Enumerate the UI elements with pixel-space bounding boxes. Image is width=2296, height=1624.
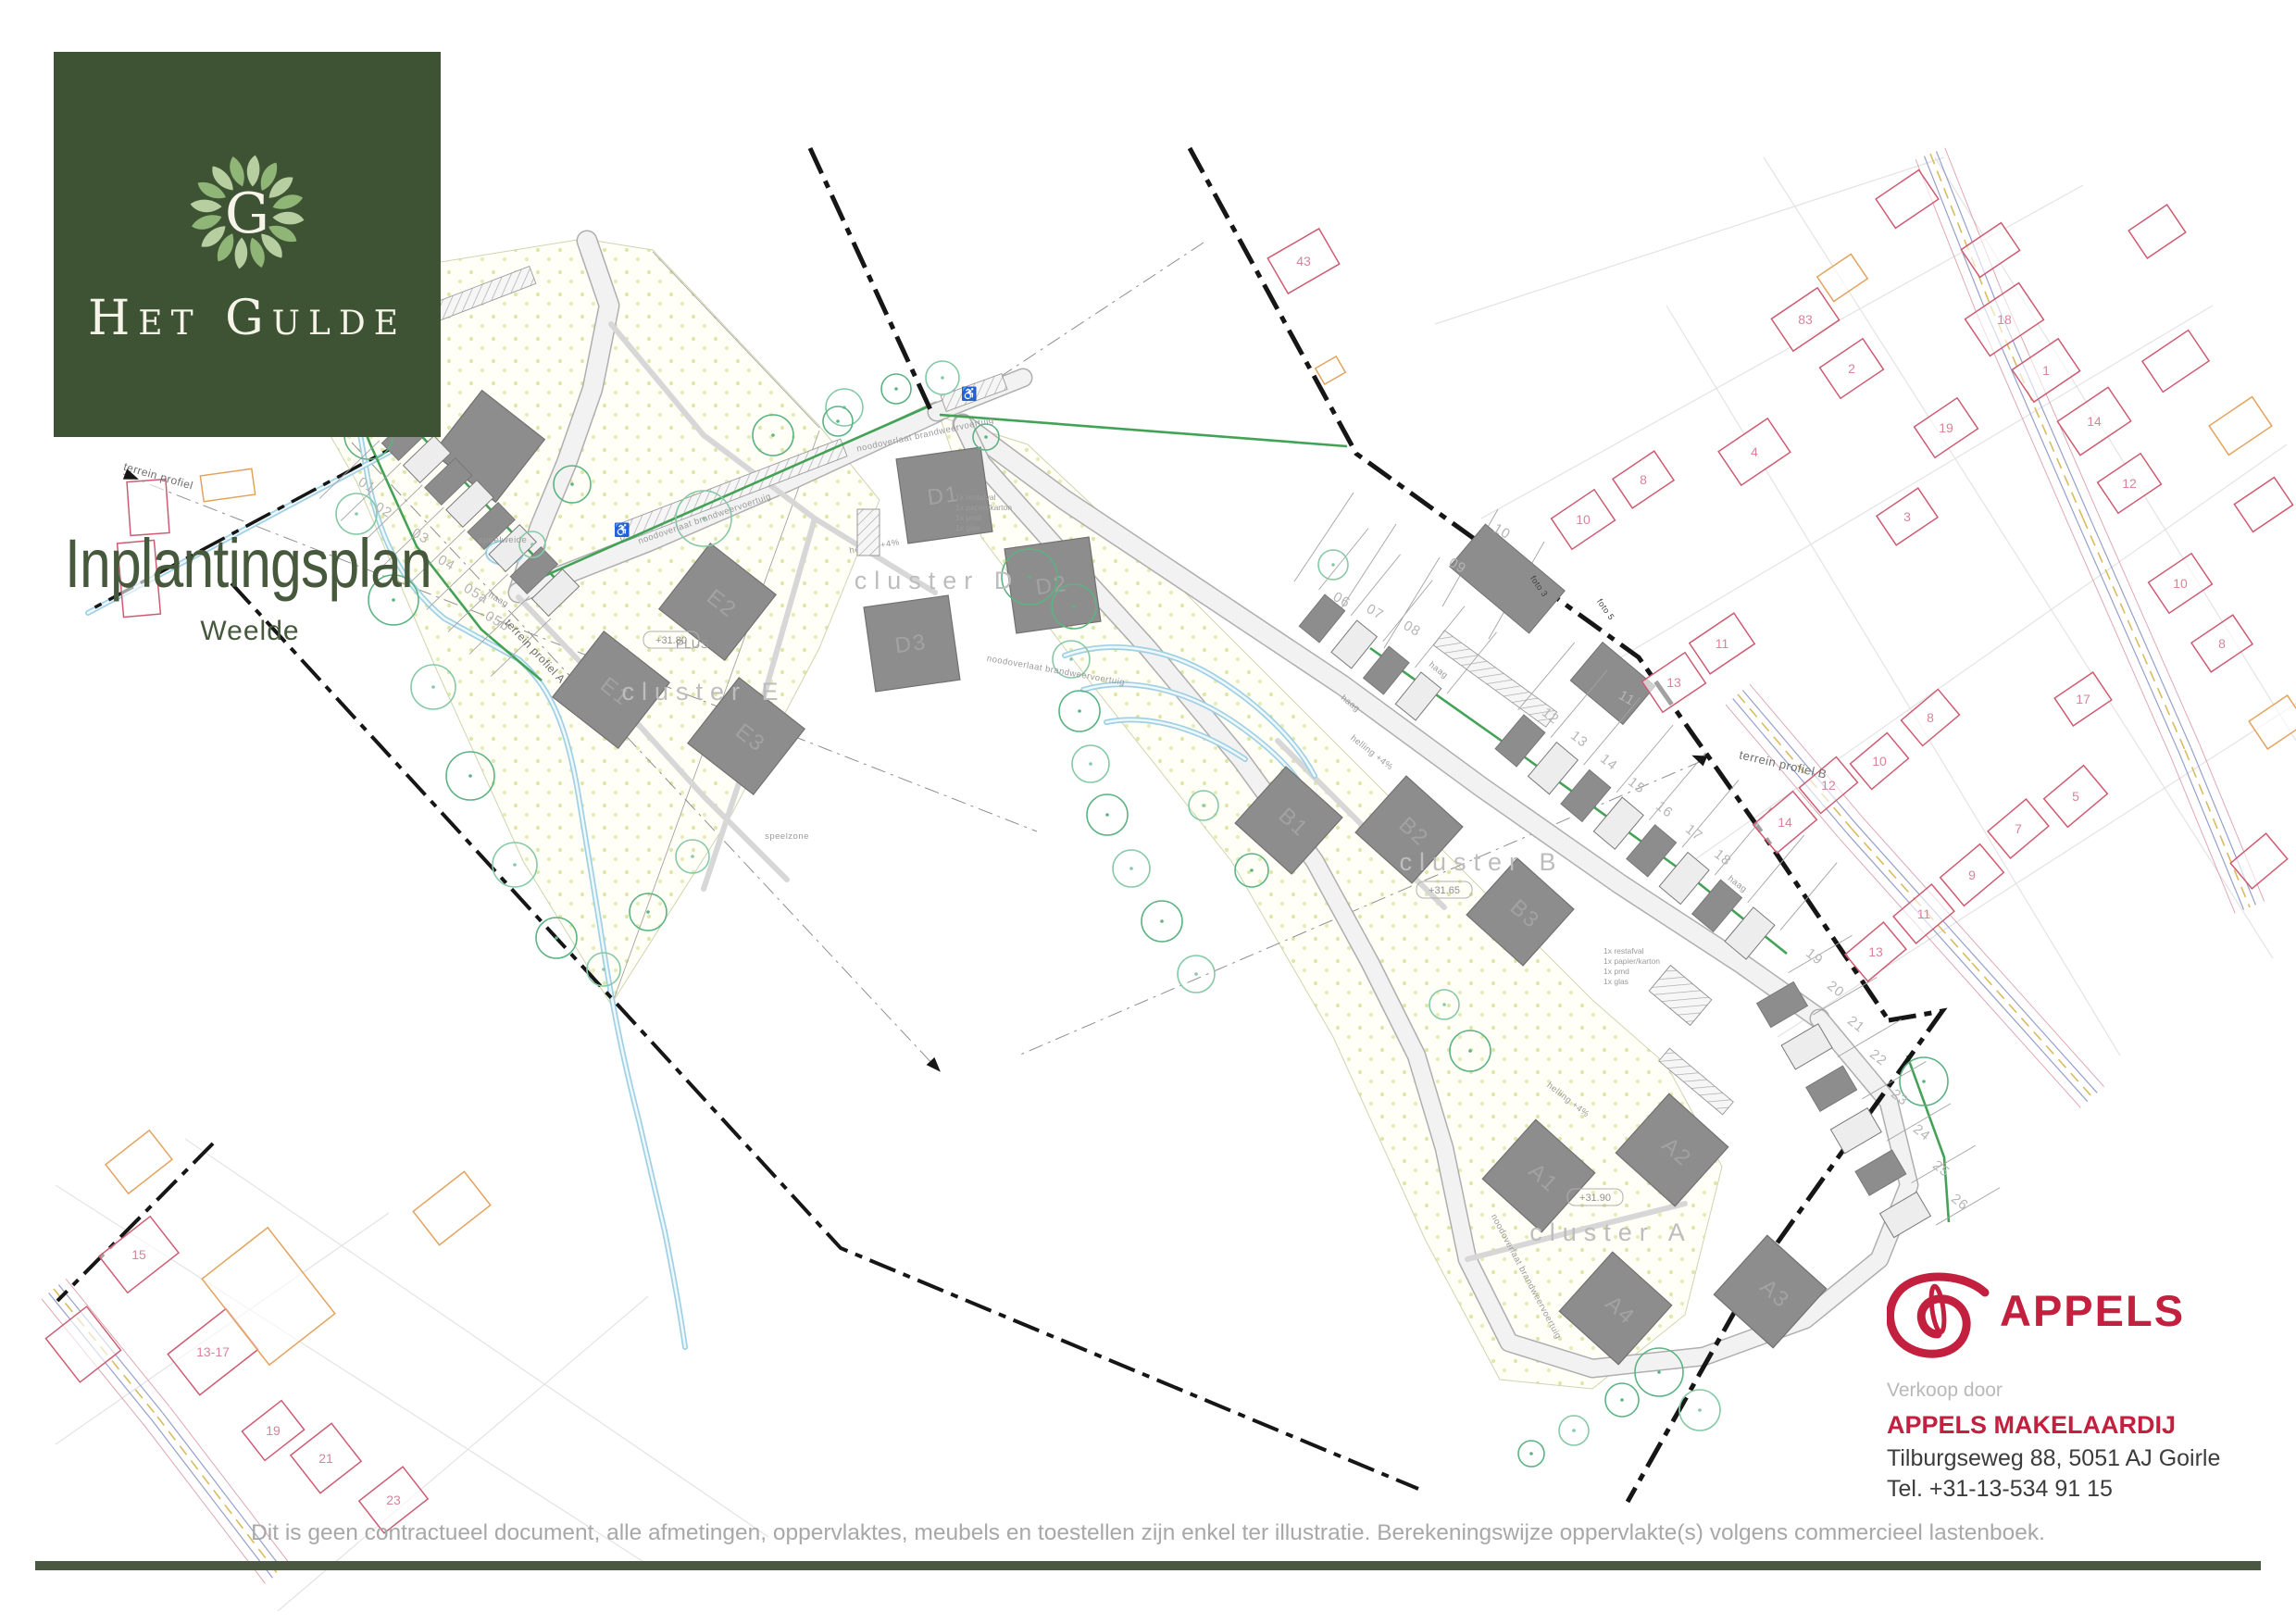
disclaimer: Dit is geen contractueel document, alle … xyxy=(0,1520,2296,1546)
monogram: G xyxy=(225,181,269,246)
map-label: 1x glas xyxy=(1603,977,1628,986)
lot-line xyxy=(1518,643,1575,710)
street-edge xyxy=(144,1426,265,1583)
cadastral-line xyxy=(1666,444,2287,880)
tree-center xyxy=(1202,804,1205,807)
map-label: 1x restafval xyxy=(1603,946,1644,956)
broker-address: Tilburgseweg 88, 5051 AJ Goirle xyxy=(1887,1445,2285,1472)
map-label: 19 xyxy=(266,1423,281,1438)
map-label: 10 xyxy=(2173,576,2188,591)
map-label: 14 xyxy=(1597,751,1620,774)
neighbor-house xyxy=(2230,833,2287,889)
tree-center xyxy=(355,512,358,516)
neighbor-house xyxy=(1876,170,1939,229)
map-label: D3 xyxy=(893,630,929,659)
neighbor-house xyxy=(106,1131,172,1193)
map-label: 8 xyxy=(1640,472,1647,487)
map-label: 1 xyxy=(2042,363,2050,378)
tree-center xyxy=(1657,1370,1661,1374)
site-boundary xyxy=(810,148,933,416)
tree-center xyxy=(941,376,944,380)
map-label: 13 xyxy=(1567,728,1591,751)
tree-center xyxy=(1129,867,1133,870)
row-house xyxy=(1529,743,1578,794)
neighbor-house xyxy=(2234,478,2292,532)
map-label: foto 5 xyxy=(1595,597,1616,622)
building-block xyxy=(1450,524,1565,633)
map-label: 10 xyxy=(1576,512,1591,527)
map-label: 15 xyxy=(1625,774,1648,797)
map-label: 13 xyxy=(1666,675,1681,690)
map-label: ♿ xyxy=(614,522,630,538)
map-label: 08 xyxy=(1401,618,1424,640)
map-label: haag xyxy=(1427,660,1450,681)
row-house xyxy=(1395,672,1441,720)
map-label: 18 xyxy=(1997,312,2012,327)
tree-center xyxy=(1069,657,1073,661)
cadastral-line xyxy=(1435,157,1944,324)
map-label: 13-17 xyxy=(196,1344,230,1359)
parking-strip xyxy=(1433,631,1556,727)
tree-center xyxy=(984,435,988,439)
map-label: +31.80 xyxy=(655,635,687,646)
direction-arrow-icon xyxy=(1690,750,1707,766)
street-centerline xyxy=(1972,963,2092,1097)
logo-box: G Het Gulde xyxy=(54,52,441,437)
map-label: 13 xyxy=(1868,944,1883,959)
map-label: D2 xyxy=(1034,571,1069,601)
map-label: 1x glas xyxy=(955,523,980,532)
broker-block: APPELS Verkoop door APPELS MAKELAARDIJ T… xyxy=(1887,1270,2285,1503)
row-house xyxy=(1364,646,1409,694)
map-label: 11 xyxy=(1917,906,1931,921)
tree-center xyxy=(602,968,605,971)
street-centerline xyxy=(1930,154,1990,306)
street-centerline xyxy=(2083,518,2185,750)
street-edge xyxy=(1750,684,1864,818)
neighbor-house xyxy=(2128,205,2186,258)
tree-center xyxy=(1028,575,1031,579)
map-label: 07 xyxy=(1364,601,1387,623)
cadastral-line xyxy=(1778,704,2296,1037)
broker-tel: Tel. +31-13-534 91 15 xyxy=(1887,1476,2285,1503)
tree-center xyxy=(1250,868,1254,872)
neighbor-house xyxy=(200,468,255,502)
lot-line xyxy=(1318,529,1367,590)
tree-center xyxy=(1078,709,1081,713)
tree-center xyxy=(468,774,472,778)
building-block xyxy=(1570,643,1654,725)
map-label: 12 xyxy=(2122,476,2137,491)
street-edge xyxy=(1924,156,1984,308)
map-label: 15 xyxy=(131,1247,146,1262)
row-house xyxy=(1830,1108,1881,1154)
tree-center xyxy=(513,863,517,867)
neighbor-house xyxy=(1817,254,1867,301)
map-label: 14 xyxy=(1778,815,1792,830)
tree-center xyxy=(691,855,694,858)
map-label: 1x restafval xyxy=(955,493,996,502)
tree-center xyxy=(894,387,898,391)
row-house xyxy=(1806,1066,1857,1111)
tree-center xyxy=(1698,1408,1702,1412)
map-label: 2 xyxy=(1848,361,1855,376)
waste-point xyxy=(1649,966,1712,1026)
map-label: 26 xyxy=(1948,1191,1971,1214)
map-label: 83 xyxy=(1798,312,1813,327)
row-house xyxy=(1331,620,1377,668)
row-house xyxy=(1495,715,1545,767)
street-edge xyxy=(2098,512,2200,743)
tree-center xyxy=(1331,563,1335,567)
map-label: 1x pmd xyxy=(1603,967,1629,976)
map-label: 9 xyxy=(1968,868,1976,882)
appels-wordmark: APPELS xyxy=(2000,1285,2185,1336)
tree-center xyxy=(1529,1452,1533,1455)
map-label: 3 xyxy=(1903,509,1911,524)
tree-center xyxy=(1105,813,1109,817)
map-label: cluster B xyxy=(1399,848,1563,876)
map-label: terrein profiel B xyxy=(1738,747,1828,781)
map-label: 20 xyxy=(1824,978,1847,1001)
tree-center xyxy=(1620,1398,1624,1402)
map-label: 1x pmd xyxy=(955,513,981,522)
map-label: 43 xyxy=(1296,254,1311,269)
neighbor-house xyxy=(2209,397,2272,456)
street-centerline xyxy=(2185,750,2250,907)
page-subtitle: Weelde xyxy=(65,616,435,647)
map-label: +31.65 xyxy=(1429,885,1460,896)
brand-name: Het Gulde xyxy=(54,294,441,343)
row-house xyxy=(1593,797,1643,849)
tree-center xyxy=(555,936,558,940)
street-edge xyxy=(1945,148,2005,300)
verkoop-door-label: Verkoop door xyxy=(1887,1380,2285,1402)
tree-center xyxy=(1160,919,1164,923)
map-label: 19 xyxy=(1803,945,1826,968)
map-label: 16 xyxy=(1653,798,1676,821)
map-label: 1x papier/karton xyxy=(1603,956,1660,966)
map-label: cluster D xyxy=(855,567,1020,594)
street-edge xyxy=(1977,958,2097,1093)
street-edge xyxy=(2170,756,2235,913)
map-label: 21 xyxy=(1844,1013,1867,1036)
neighbor-house xyxy=(2142,331,2209,393)
map-label: 21 xyxy=(318,1451,333,1466)
map-label: +31.90 xyxy=(1579,1193,1611,1204)
map-label: 24 xyxy=(1910,1121,1933,1144)
neighbor-house xyxy=(413,1171,490,1244)
row-house xyxy=(1627,825,1677,877)
tree-center xyxy=(1468,1049,1472,1053)
street-edge xyxy=(2179,753,2244,910)
tree-center xyxy=(1089,762,1092,766)
tree-center xyxy=(530,543,534,546)
map-label: 7 xyxy=(2015,821,2022,836)
map-label: 10 xyxy=(1872,754,1887,768)
map-label: cluster E xyxy=(621,678,785,706)
page-title: Inplantingsplan xyxy=(65,524,368,603)
tree-center xyxy=(1922,1080,1926,1083)
tree-center xyxy=(1572,1429,1576,1432)
tree-center xyxy=(431,685,435,689)
map-label: cluster A xyxy=(1529,1218,1692,1246)
map-label: 5 xyxy=(2072,789,2079,804)
waste-point xyxy=(857,509,880,556)
map-label: 17 xyxy=(2076,692,2090,706)
map-label: 8 xyxy=(1927,710,1934,725)
tree-center xyxy=(836,419,840,423)
lot-line xyxy=(1294,493,1354,581)
tree-center xyxy=(570,482,574,486)
appels-apple-icon xyxy=(1887,1270,1990,1367)
street-edge xyxy=(1937,151,1997,303)
map-label: speelweide xyxy=(479,535,528,545)
map-label: 23 xyxy=(386,1493,401,1507)
neighbor-house xyxy=(1316,356,1346,384)
map-label: 14 xyxy=(2087,414,2102,429)
street-edge xyxy=(1967,968,2088,1102)
neighbor-house xyxy=(1961,223,2019,278)
map-label: 11 xyxy=(1716,636,1729,651)
tree-center xyxy=(1442,1003,1446,1006)
map-label: 8 xyxy=(2218,636,2226,651)
map-label: 1x papier/karton xyxy=(955,503,1012,512)
street-edge xyxy=(2068,525,2170,756)
title-block: Inplantingsplan Weelde xyxy=(65,524,435,647)
leaf-wreath-icon: G xyxy=(178,143,317,281)
street-edge xyxy=(2089,516,2190,747)
lot-line xyxy=(1813,978,1877,1015)
map-label: speelzone xyxy=(765,831,809,842)
tree-center xyxy=(646,910,650,914)
map-label: 4 xyxy=(1751,444,1758,459)
bottom-bar xyxy=(35,1561,2261,1570)
map-label: 18 xyxy=(1711,846,1734,869)
map-label: 19 xyxy=(1939,420,1953,435)
broker-name: APPELS MAKELAARDIJ xyxy=(1887,1411,2285,1440)
tree-center xyxy=(1194,972,1198,976)
map-label: 17 xyxy=(1682,821,1705,844)
tree-center xyxy=(1072,605,1076,608)
page: { "logo": { "brand": "Het Gulde", "monog… xyxy=(0,0,2296,1624)
tree-center xyxy=(771,433,775,437)
map-label: ♿ xyxy=(961,386,977,402)
